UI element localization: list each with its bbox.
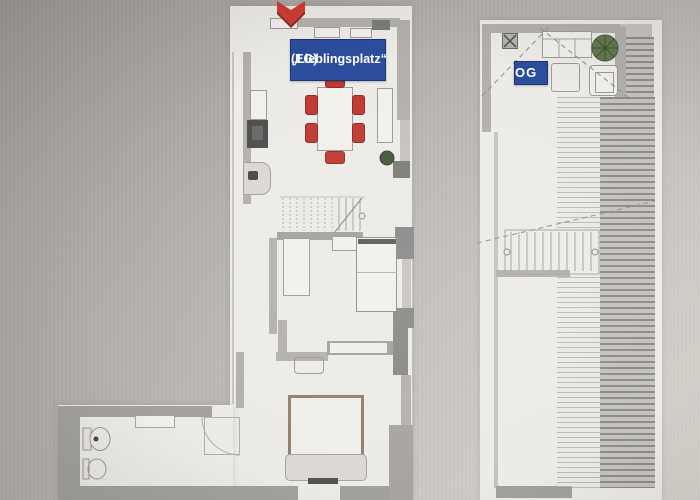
radiator xyxy=(135,415,175,428)
staircase-area xyxy=(503,229,599,275)
eg-label-line2: (EG) xyxy=(291,52,317,68)
single-bed xyxy=(356,237,397,312)
sideboard xyxy=(314,27,340,38)
red-chevron-location-marker xyxy=(274,0,308,28)
oven-door xyxy=(252,126,263,140)
wall-segment xyxy=(397,20,410,120)
bed-foot xyxy=(308,478,338,484)
bed-divider-line xyxy=(357,272,397,273)
shelf xyxy=(332,236,357,251)
roof-hatching xyxy=(626,37,654,97)
shower xyxy=(204,417,240,455)
double-bed-blanket xyxy=(285,454,367,481)
eg-label: „Lieblingsplatz“ (EG) xyxy=(290,39,386,81)
wall-segment xyxy=(389,425,413,500)
og-label: OG xyxy=(514,61,548,85)
vent-box-icon xyxy=(502,33,518,49)
wall-segment xyxy=(269,238,277,334)
sofa xyxy=(542,31,592,58)
desk xyxy=(330,343,387,353)
wall-segment xyxy=(393,313,408,375)
wall-pier xyxy=(393,161,410,178)
chair-icon xyxy=(352,95,365,115)
outer-wall-line xyxy=(232,52,234,404)
dining-table xyxy=(317,87,353,151)
faucet-icon xyxy=(248,171,258,180)
coffee-table xyxy=(551,63,580,92)
wall-segment xyxy=(402,259,411,309)
chair-icon xyxy=(325,151,345,164)
chair-icon xyxy=(305,95,318,115)
kitchen-cabinet xyxy=(250,90,267,120)
wardrobe xyxy=(283,238,310,296)
armchair-seat xyxy=(595,72,614,93)
sideboard xyxy=(350,28,372,38)
chair-icon xyxy=(352,123,365,143)
wall-segment xyxy=(496,270,570,277)
roof-hatching-light xyxy=(557,97,600,488)
wall-segment xyxy=(482,24,491,132)
floorplan-photo: „Lieblingsplatz“ (EG) OG xyxy=(0,0,700,500)
wall-segment xyxy=(58,486,298,500)
chair-icon xyxy=(305,123,318,143)
counter-appliance xyxy=(372,20,390,30)
sideboard xyxy=(377,88,393,143)
wall-segment xyxy=(236,352,244,408)
bed-headboard xyxy=(358,239,396,244)
outer-wall-line xyxy=(494,132,498,488)
roof-hatching xyxy=(600,97,655,488)
side-table xyxy=(294,357,324,374)
wall-pier xyxy=(395,227,414,259)
og-label-text: OG xyxy=(515,65,537,81)
